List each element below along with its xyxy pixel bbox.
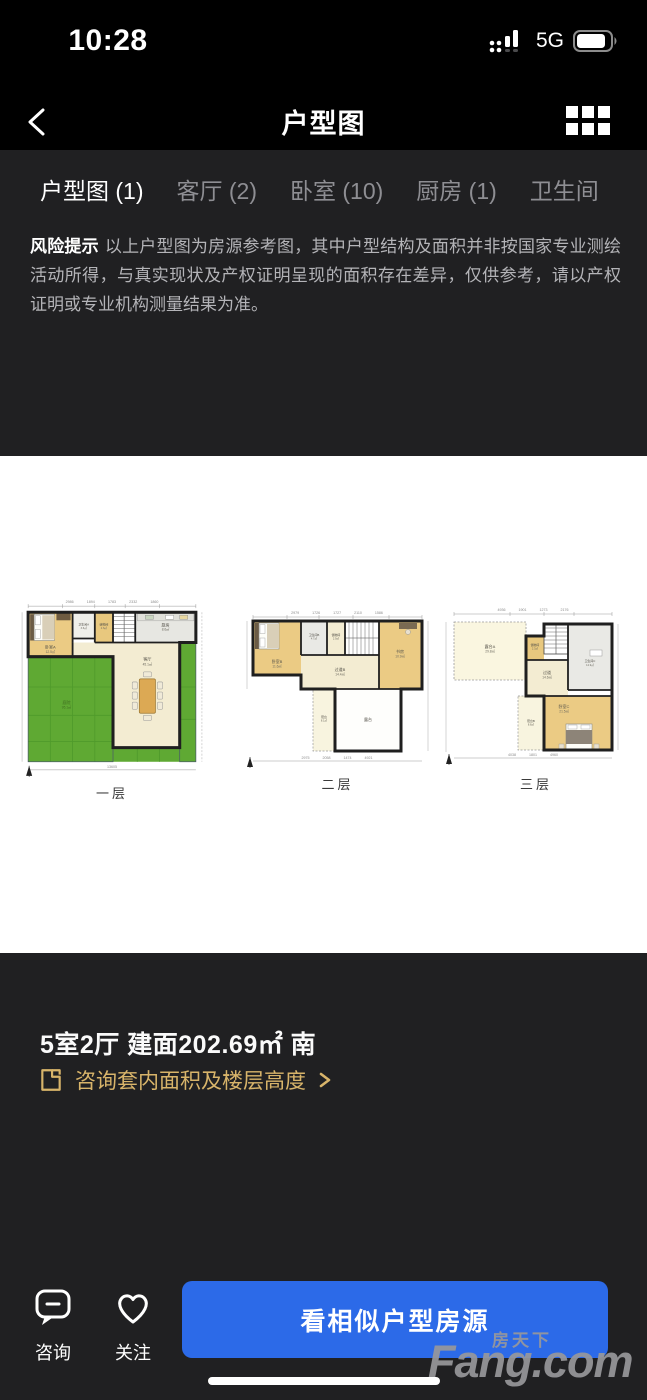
svg-text:8.1㎡: 8.1㎡ bbox=[321, 719, 328, 723]
svg-text:卫生间C: 卫生间C bbox=[585, 658, 596, 663]
floor-1-caption: 一层 bbox=[16, 783, 208, 802]
battery-icon bbox=[573, 29, 619, 53]
network-label: 5G bbox=[536, 29, 564, 53]
svg-text:21.5㎡: 21.5㎡ bbox=[559, 709, 569, 714]
tab-kitchen[interactable]: 厨房 (1) bbox=[416, 172, 497, 206]
content-panel: 户型图 (1) 客厅 (2) 卧室 (10) 厨房 (1) 卫生间 风险提示以上… bbox=[0, 150, 647, 456]
svg-text:10.9㎡: 10.9㎡ bbox=[395, 654, 405, 659]
heart-icon bbox=[112, 1288, 154, 1328]
tab-floorplan[interactable]: 户型图 (1) bbox=[40, 172, 144, 206]
risk-text: 以上户型图为房源参考图，其中户型结构及面积并非按国家专业测绘活动所得，与真实现状… bbox=[30, 237, 621, 314]
risk-notice: 风险提示以上户型图为房源参考图，其中户型结构及面积并非按国家专业测绘活动所得，与… bbox=[30, 232, 621, 319]
svg-text:11.6㎡: 11.6㎡ bbox=[272, 664, 282, 669]
compass-icon bbox=[26, 766, 32, 777]
svg-text:卧室C: 卧室C bbox=[559, 703, 570, 709]
compass-icon bbox=[247, 757, 253, 768]
consult-area-link[interactable]: 咨询套内面积及楼层高度 bbox=[38, 1065, 333, 1095]
grid-menu-button[interactable] bbox=[565, 104, 611, 138]
bed-icon bbox=[255, 623, 279, 649]
svg-text:95.1㎡: 95.1㎡ bbox=[62, 705, 72, 710]
tab-bathroom[interactable]: 卫生间 bbox=[530, 172, 599, 206]
stairs-icon bbox=[544, 624, 568, 654]
svg-text:阳台: 阳台 bbox=[321, 714, 327, 719]
svg-text:储物间: 储物间 bbox=[100, 621, 109, 626]
svg-text:12.5㎡: 12.5㎡ bbox=[46, 649, 56, 654]
bed-icon bbox=[30, 614, 54, 640]
floor-plan-3: 4936 1901 1273 2176 4038 1801 4960 bbox=[440, 606, 632, 793]
stairs-icon bbox=[345, 621, 379, 655]
svg-text:过道: 过道 bbox=[543, 669, 551, 675]
svg-text:露台: 露台 bbox=[364, 716, 372, 722]
screen: 10:28 5G 户型图 bbox=[0, 0, 647, 1400]
status-bar: 10:28 5G bbox=[0, 0, 647, 90]
svg-text:8.8㎡: 8.8㎡ bbox=[528, 723, 535, 727]
floorplan-icon bbox=[38, 1067, 64, 1093]
svg-text:卫生间B: 卫生间B bbox=[309, 632, 320, 637]
page-title: 户型图 bbox=[0, 102, 647, 141]
svg-text:储物间: 储物间 bbox=[531, 642, 540, 647]
floor-plan-1: 2986 1894 1783 2332 1860 13605 bbox=[16, 598, 208, 802]
svg-text:3.6㎡: 3.6㎡ bbox=[81, 626, 88, 630]
svg-text:14.4㎡: 14.4㎡ bbox=[335, 672, 345, 677]
sink-icon bbox=[590, 650, 602, 656]
tab-livingroom[interactable]: 客厅 (2) bbox=[177, 172, 258, 206]
svg-text:卧室A: 卧室A bbox=[45, 644, 56, 650]
similar-listings-button[interactable]: 看相似户型房源 bbox=[182, 1281, 608, 1358]
property-summary: 5室2厅 建面202.69㎡ 南 bbox=[40, 1025, 316, 1061]
stairs-icon bbox=[113, 612, 135, 642]
svg-text:2986 1894 1783 2332 1860: 2986 1894 1783 2332 1860 bbox=[66, 600, 159, 604]
svg-text:2.3㎡: 2.3㎡ bbox=[532, 647, 539, 651]
tab-bedroom[interactable]: 卧室 (10) bbox=[290, 172, 383, 206]
nav-bar: 户型图 bbox=[0, 90, 647, 150]
svg-text:29.8㎡: 29.8㎡ bbox=[485, 649, 495, 654]
floor-plan-1-drawing: 2986 1894 1783 2332 1860 13605 bbox=[16, 598, 208, 778]
svg-text:客厅: 客厅 bbox=[143, 656, 151, 662]
grid-icon bbox=[565, 104, 611, 138]
floor-3-caption: 三层 bbox=[440, 774, 632, 793]
svg-text:阳台B: 阳台B bbox=[527, 718, 535, 723]
svg-text:12.9㎡: 12.9㎡ bbox=[586, 663, 594, 667]
compass-icon bbox=[446, 754, 452, 765]
floor-plan-3-drawing: 4936 1901 1273 2176 4038 1801 4960 bbox=[440, 606, 632, 769]
svg-text:45.1㎡: 45.1㎡ bbox=[143, 661, 153, 666]
svg-text:4936 1901 1273 2176: 4936 1901 1273 2176 bbox=[498, 608, 569, 612]
svg-text:2.6㎡: 2.6㎡ bbox=[101, 626, 108, 630]
svg-text:书房: 书房 bbox=[396, 648, 404, 654]
svg-text:8.6㎡: 8.6㎡ bbox=[162, 626, 170, 631]
svg-text:露台A: 露台A bbox=[485, 643, 496, 649]
kitchen-counter-icon bbox=[137, 614, 194, 621]
svg-text:卫生间A: 卫生间A bbox=[78, 621, 89, 626]
floor-2-caption: 二层 bbox=[243, 774, 432, 793]
consult-button[interactable]: 咨询 bbox=[18, 1288, 88, 1365]
consult-button-label: 咨询 bbox=[18, 1339, 88, 1365]
home-indicator[interactable] bbox=[208, 1377, 440, 1385]
follow-button-label: 关注 bbox=[98, 1339, 168, 1365]
svg-text:储物间: 储物间 bbox=[332, 632, 341, 637]
signal-icon bbox=[489, 28, 527, 54]
status-icons: 5G bbox=[489, 28, 619, 54]
svg-text:2.9㎡: 2.9㎡ bbox=[333, 637, 340, 641]
floor-plan-2: 2979 1726 1727 2110 1586 2975 2058 1474 … bbox=[243, 609, 432, 793]
category-tabs: 户型图 (1) 客厅 (2) 卧室 (10) 厨房 (1) 卫生间 bbox=[0, 150, 647, 206]
svg-text:13605: 13605 bbox=[107, 765, 117, 769]
svg-text:过道B: 过道B bbox=[335, 666, 346, 672]
svg-text:卧室B: 卧室B bbox=[272, 658, 283, 664]
svg-text:14.6㎡: 14.6㎡ bbox=[542, 675, 552, 680]
follow-button[interactable]: 关注 bbox=[98, 1288, 168, 1365]
risk-label: 风险提示 bbox=[30, 237, 99, 256]
wardrobe-icon bbox=[56, 613, 70, 620]
floor-plan-2-drawing: 2979 1726 1727 2110 1586 2975 2058 1474 … bbox=[243, 609, 432, 769]
status-time: 10:28 bbox=[58, 24, 158, 58]
svg-text:庭院: 庭院 bbox=[62, 699, 70, 705]
svg-text:2979 1726 1727 2110 1586: 2979 1726 1727 2110 1586 bbox=[291, 611, 383, 615]
chevron-right-icon bbox=[317, 1070, 333, 1090]
svg-text:2975 2058 1474 4921: 2975 2058 1474 4921 bbox=[302, 756, 373, 760]
chat-icon bbox=[32, 1288, 74, 1328]
floorplan-image[interactable]: 2986 1894 1783 2332 1860 13605 bbox=[0, 456, 647, 953]
svg-text:4038 1801 4960: 4038 1801 4960 bbox=[508, 753, 558, 757]
svg-text:4.7㎡: 4.7㎡ bbox=[311, 637, 318, 641]
consult-link-text: 咨询套内面积及楼层高度 bbox=[75, 1065, 306, 1095]
